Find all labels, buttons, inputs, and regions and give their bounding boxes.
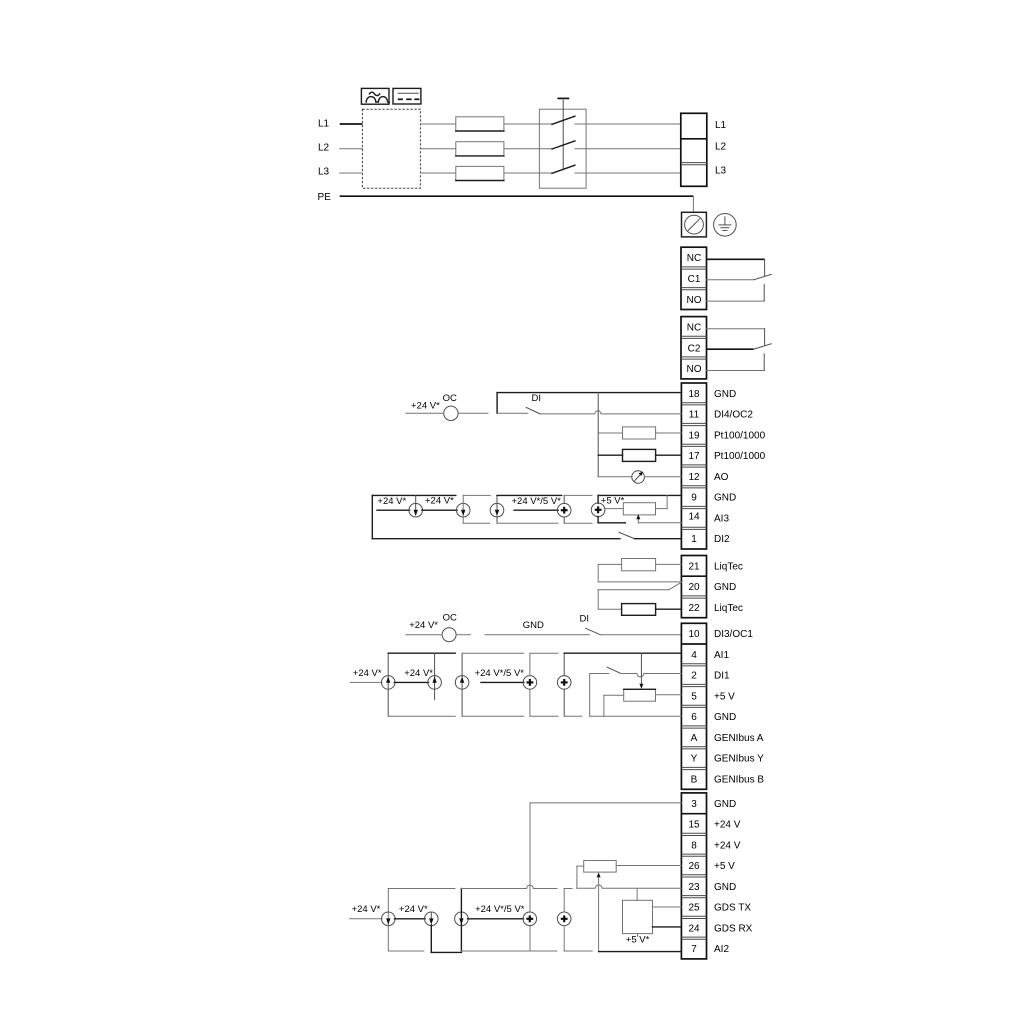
svg-text:+24 V*: +24 V* [352,904,381,915]
svg-text:8: 8 [691,840,697,851]
svg-text:12: 12 [688,472,700,483]
svg-text:+24 V: +24 V [714,840,741,851]
svg-text:Pt100/1000: Pt100/1000 [714,430,766,441]
svg-text:+24 V*: +24 V* [425,496,454,507]
svg-text:LiqTec: LiqTec [714,603,743,614]
svg-text:DI: DI [532,393,542,404]
svg-text:17: 17 [688,451,700,462]
svg-text:AO: AO [714,472,729,483]
svg-text:25: 25 [688,903,700,914]
svg-text:19: 19 [688,430,700,441]
svg-text:L1: L1 [715,120,727,131]
svg-text:GND: GND [714,493,736,504]
svg-text:26: 26 [688,861,700,872]
svg-text:GDS TX: GDS TX [714,903,751,914]
svg-text:4: 4 [691,650,697,661]
svg-text:+24 V*: +24 V* [399,904,428,915]
svg-text:AI2: AI2 [714,944,729,955]
svg-text:+24 V*: +24 V* [409,620,438,631]
svg-text:L1: L1 [318,119,330,130]
svg-text:15: 15 [688,820,700,831]
svg-text:DI2: DI2 [714,534,730,545]
svg-text:C1: C1 [688,274,701,285]
svg-text:+24 V: +24 V [714,820,741,831]
svg-text:GENIbus B: GENIbus B [714,774,764,785]
svg-text:+5 V: +5 V [714,691,735,702]
svg-text:18: 18 [688,389,700,400]
svg-text:+24 V*: +24 V* [353,668,382,679]
svg-text:9: 9 [691,493,697,504]
svg-text:+5 V*: +5 V* [601,496,625,507]
svg-text:2: 2 [691,671,697,682]
svg-text:NO: NO [687,364,702,375]
svg-text:GENIbus A: GENIbus A [714,733,764,744]
svg-text:NO: NO [687,295,702,306]
svg-text:Pt100/1000: Pt100/1000 [714,451,766,462]
svg-text:OC: OC [443,612,457,623]
svg-text:GND: GND [714,882,736,893]
svg-text:10: 10 [688,629,700,640]
svg-text:L2: L2 [715,142,727,153]
svg-text:20: 20 [688,582,700,593]
svg-text:AI3: AI3 [714,513,729,524]
svg-text:6: 6 [691,712,697,723]
svg-text:B: B [691,774,698,785]
svg-text:GND: GND [714,799,736,810]
svg-text:+5 V*: +5 V* [626,934,650,945]
svg-text:7: 7 [691,944,697,955]
svg-text:23: 23 [688,882,700,893]
svg-text:NC: NC [687,322,701,333]
svg-text:GND: GND [523,620,544,631]
svg-text:PE: PE [318,192,332,203]
svg-text:GDS RX: GDS RX [714,923,753,934]
svg-text:+24 V*/5 V*: +24 V*/5 V* [512,496,562,507]
svg-text:1: 1 [691,534,697,545]
svg-text:LiqTec: LiqTec [714,561,743,572]
svg-text:11: 11 [689,410,700,421]
svg-text:C2: C2 [688,343,701,354]
svg-text:22: 22 [688,603,700,614]
svg-text:+24 V*/5 V*: +24 V*/5 V* [475,904,525,915]
svg-text:+24 V*/5 V*: +24 V*/5 V* [475,668,525,679]
svg-text:GENIbus Y: GENIbus Y [714,754,764,765]
svg-text:+24 V*: +24 V* [411,400,440,411]
svg-text:14: 14 [688,511,700,522]
svg-text:GND: GND [714,389,736,400]
svg-text:DI4/OC2: DI4/OC2 [714,410,753,421]
svg-text:L2: L2 [318,143,330,154]
svg-text:24: 24 [688,923,700,934]
svg-text:3: 3 [691,799,697,810]
svg-text:L3: L3 [318,167,330,178]
svg-text:L3: L3 [715,166,727,177]
svg-text:OC: OC [443,393,457,404]
svg-text:DI: DI [580,614,590,625]
svg-text:NC: NC [687,253,701,264]
svg-text:5: 5 [691,691,697,702]
svg-text:+24 V*: +24 V* [377,496,406,507]
svg-text:21: 21 [688,561,700,572]
svg-text:+24 V*: +24 V* [404,668,433,679]
svg-text:+5 V: +5 V [714,861,735,872]
svg-text:DI1: DI1 [714,671,730,682]
svg-text:Y: Y [691,754,698,765]
svg-text:A: A [691,733,698,744]
svg-text:DI3/OC1: DI3/OC1 [714,629,753,640]
svg-text:AI1: AI1 [714,650,729,661]
svg-text:GND: GND [714,712,736,723]
svg-text:GND: GND [714,582,736,593]
